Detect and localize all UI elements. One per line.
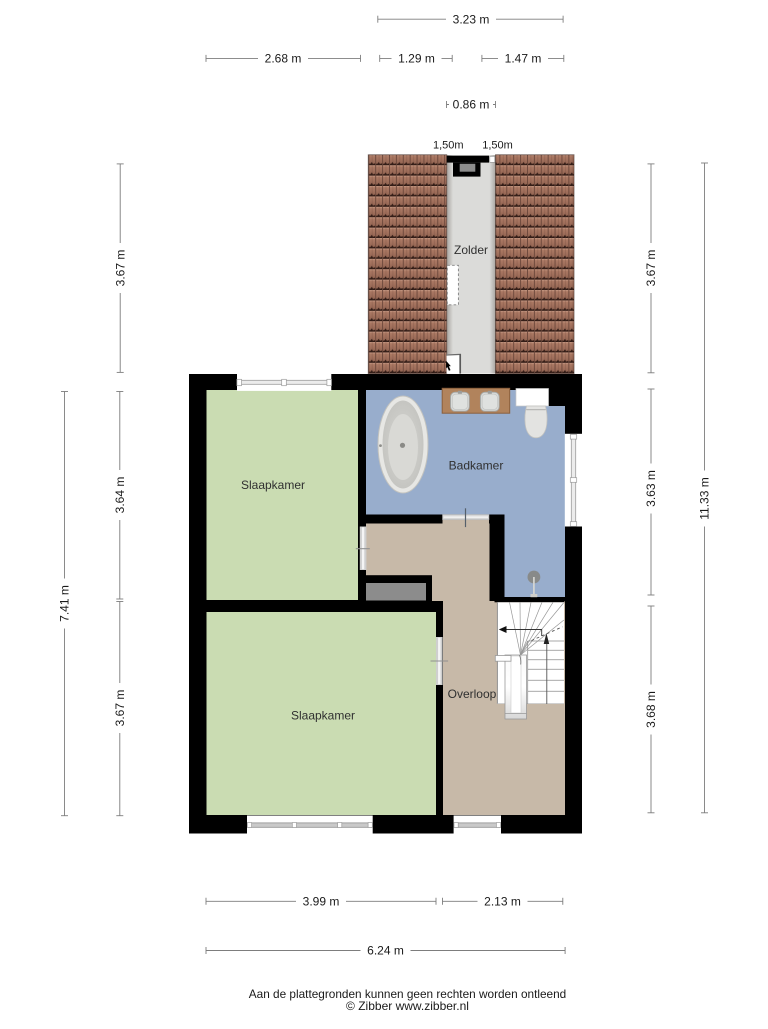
svg-text:2.13 m: 2.13 m bbox=[484, 895, 521, 909]
svg-text:3.67 m: 3.67 m bbox=[113, 250, 127, 287]
svg-text:Slaapkamer: Slaapkamer bbox=[241, 478, 305, 492]
svg-text:0.86 m: 0.86 m bbox=[453, 98, 490, 112]
svg-text:3.99 m: 3.99 m bbox=[303, 895, 340, 909]
svg-text:Badkamer: Badkamer bbox=[449, 458, 504, 472]
svg-text:1.47 m: 1.47 m bbox=[505, 52, 542, 66]
svg-text:Zolder: Zolder bbox=[454, 243, 488, 257]
svg-text:3.68 m: 3.68 m bbox=[644, 691, 658, 728]
svg-text:2.68 m: 2.68 m bbox=[265, 52, 302, 66]
svg-text:7.41 m: 7.41 m bbox=[58, 585, 72, 622]
svg-text:3.67 m: 3.67 m bbox=[644, 250, 658, 287]
svg-text:1.29 m: 1.29 m bbox=[398, 52, 435, 66]
svg-text:3.23 m: 3.23 m bbox=[453, 12, 490, 26]
svg-text:6.24 m: 6.24 m bbox=[367, 944, 404, 958]
svg-text:1,50m: 1,50m bbox=[482, 140, 513, 152]
svg-text:11.33 m: 11.33 m bbox=[698, 477, 712, 519]
svg-text:1,50m: 1,50m bbox=[433, 140, 464, 152]
svg-text:© Zibber www.zibber.nl: © Zibber www.zibber.nl bbox=[346, 999, 469, 1013]
svg-text:3.63 m: 3.63 m bbox=[644, 470, 658, 507]
svg-text:Slaapkamer: Slaapkamer bbox=[291, 709, 355, 723]
svg-text:Overloop: Overloop bbox=[448, 687, 497, 701]
svg-text:3.67 m: 3.67 m bbox=[113, 690, 127, 727]
svg-text:3.64 m: 3.64 m bbox=[113, 477, 127, 514]
